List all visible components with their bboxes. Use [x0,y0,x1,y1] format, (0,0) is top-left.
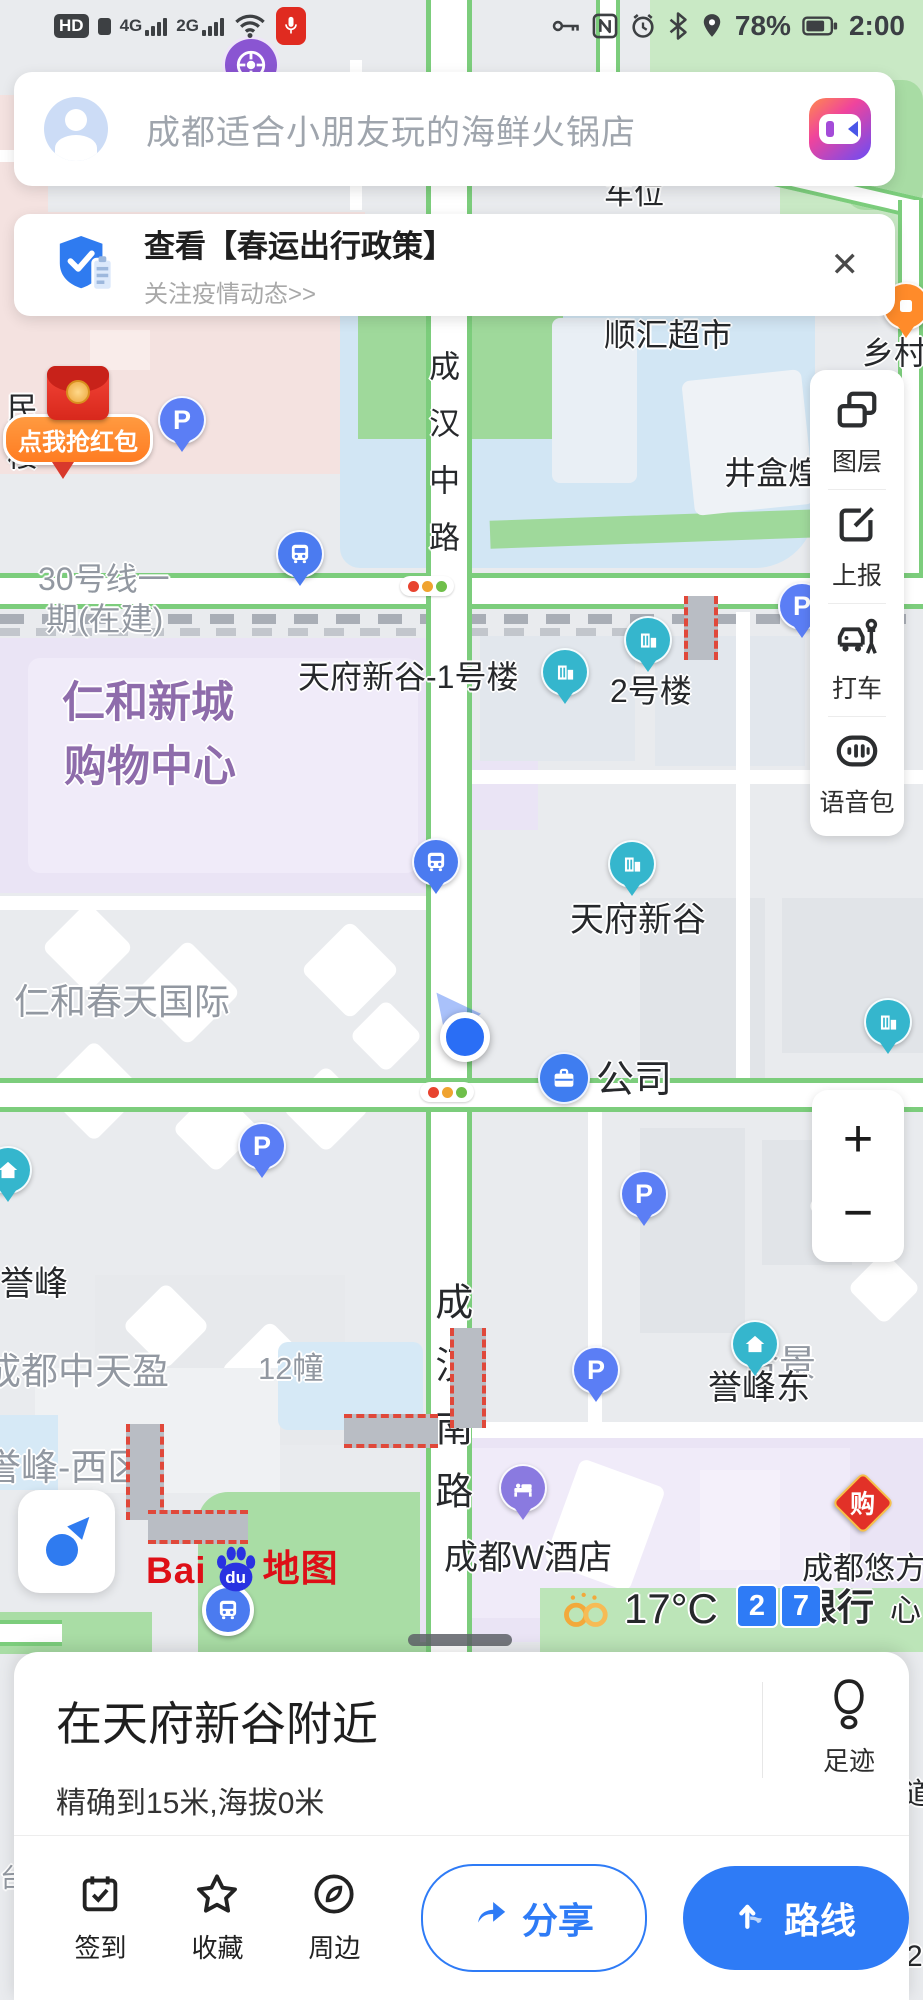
footprint-label: 足迹 [823,1741,875,1778]
home-pin[interactable] [731,1320,779,1368]
zoom-panel: + − [812,1090,904,1262]
map-label: 仁和春天国际 [14,982,230,1022]
map-tool-panel: 图层 上报 打车 语音包 [810,370,904,836]
map-block [640,1128,745,1333]
nearby-button[interactable]: 周边 [276,1871,393,1965]
building-pin[interactable] [541,648,589,696]
plate: 7 [780,1584,822,1628]
construction-v [450,1328,486,1428]
banner-title: 查看【春运出行政策】 [144,221,454,266]
checkin-button[interactable]: 签到 [42,1871,159,1965]
battery-icon [801,13,839,39]
favorite-label: 收藏 [191,1928,243,1965]
signal-2g-icon: 2G [176,16,224,36]
key-icon [551,13,581,39]
report-label: 上报 [832,556,882,592]
bluetooth-icon [667,11,689,41]
wifi-icon [233,11,267,41]
map-label: 天府新谷 [570,902,706,939]
share-icon [474,1897,508,1940]
map-road [0,896,426,910]
baidu-maps-app: 车位顺汇超市乡村基井盒煌成汉中路民楼30号线一期(在建)天府新谷-1号楼2号楼仁… [0,0,923,2000]
map-building [700,1470,780,1570]
report-icon [834,501,880,552]
shield-icon [54,232,116,298]
building-pin[interactable] [608,840,656,888]
logo-bai: Bai [146,1550,207,1592]
favorite-button[interactable]: 收藏 [159,1871,276,1965]
map-label: 天府新谷-1号楼 [298,660,518,695]
route-arrow-icon [736,1897,770,1940]
map-building [349,999,423,1073]
zoom-in-button[interactable]: + [843,1113,873,1165]
kuaishou-icon[interactable] [809,98,871,160]
map-building [847,1251,921,1325]
signal-4g-icon: 4G [120,16,168,36]
voice-pack-icon [834,728,880,779]
map-label: 成汉中路 [424,350,458,578]
map-label: 顺汇超市 [604,318,732,353]
map-building [681,369,814,516]
hd-voice-icon: HD [54,14,89,38]
construction-v [684,596,718,660]
map-label: 成都中天盈 [0,1352,169,1393]
notice-banner[interactable]: 查看【春运出行政策】 关注疫情动态>> ✕ [14,214,895,316]
taxi-button[interactable]: 打车 [832,614,882,705]
footprint-icon [827,1674,871,1739]
checkin-label: 签到 [74,1928,126,1965]
sheet-drag-handle[interactable] [408,1634,512,1646]
traffic-light [400,576,454,596]
share-label: 分享 [522,1892,594,1944]
search-bar[interactable]: 成都适合小朋友玩的海鲜火锅店 [14,72,895,186]
divider [762,1682,763,1778]
baidu-paw-icon: du [211,1542,261,1594]
status-bar: HD 4G 2G [0,0,923,52]
hotel-pin[interactable] [499,1464,547,1512]
baidu-maps-logo: Bai du 地图 [146,1538,339,1592]
layers-label: 图层 [832,442,882,478]
location-title: 在天府新谷附近 [56,1688,378,1754]
taxi-icon [834,614,880,665]
star-icon [194,1871,240,1922]
company-badge[interactable] [538,1052,590,1104]
checkin-icon [77,1871,123,1922]
bus-pin[interactable] [276,530,324,578]
alarm-icon [629,12,657,40]
sim-chip-icon [98,18,111,35]
layers-button[interactable]: 图层 [832,387,882,478]
avatar[interactable] [44,97,108,161]
map-label: 心 [890,1594,921,1628]
map-building [90,330,150,370]
nearby-label: 周边 [308,1928,360,1965]
map-label: 誉峰 [0,1266,68,1303]
map-label: 成都悠方 [802,1552,923,1586]
location-sheet: 在天府新谷附近 精确到15米,海拔0米 足迹 签到 收藏 [14,1652,909,2000]
battery-percent: 78% [735,10,791,42]
close-icon[interactable]: ✕ [831,245,860,285]
map-label: 12幢 [258,1352,323,1386]
p-pin[interactable]: P [238,1122,286,1170]
plate: 2 [736,1584,778,1628]
share-button[interactable]: 分享 [421,1864,647,1972]
map-label: 仁和新城 [62,680,234,727]
compass-button[interactable] [18,1490,115,1593]
building-pin[interactable] [864,998,912,1046]
route-button[interactable]: 路线 [683,1866,909,1970]
nfc-icon [591,12,619,40]
map-label: 成都W酒店 [444,1540,612,1577]
traffic-light [420,1082,474,1102]
map-label: 期(在建) [46,602,163,637]
map-label: 购物中心 [64,744,236,791]
compass-needle-icon [67,1510,97,1540]
route-label: 路线 [784,1892,856,1944]
search-input[interactable]: 成都适合小朋友玩的海鲜火锅店 [146,105,636,154]
map-road [0,1620,62,1646]
map-road [472,1422,923,1438]
voice-pack-label: 语音包 [819,783,894,819]
taxi-label: 打车 [832,669,882,705]
map-road [736,612,750,1078]
map-label: 誉峰-西区 [0,1448,144,1489]
map-label: 30号线一 [38,562,170,597]
compass-dot-icon [46,1534,78,1566]
p-pin[interactable]: P [158,396,206,444]
bus-pin[interactable] [412,838,460,886]
clock-time: 2:00 [849,10,905,42]
mic-recording-icon [276,7,306,45]
banner-subtitle: 关注疫情动态>> [144,274,454,309]
p-pin[interactable]: P [572,1346,620,1394]
red-envelope[interactable]: 点我抢红包 [16,366,140,490]
logo-map-word: 地图 [263,1538,339,1592]
construction-h [344,1414,438,1448]
building-pin[interactable] [624,616,672,664]
p-pin[interactable]: P [620,1170,668,1218]
map-label: 井盒煌 [724,456,820,491]
report-button[interactable]: 上报 [832,501,882,592]
location-accuracy: 精确到15米,海拔0米 [56,1778,324,1822]
map-label: 公司 [596,1060,672,1102]
map-label: 17°C [624,1586,718,1632]
weather-rings [560,1592,616,1629]
shop-badge[interactable]: 购 [836,1476,890,1530]
layers-icon [834,387,880,438]
nearby-compass-icon [311,1871,357,1922]
zoom-out-button[interactable]: − [843,1187,873,1239]
construction-v [126,1424,164,1520]
map-building [42,902,134,994]
location-icon [699,11,725,41]
home-pin[interactable] [0,1146,32,1194]
footprint-button[interactable]: 足迹 [794,1674,904,1778]
voice-pack-button[interactable]: 语音包 [819,728,894,819]
